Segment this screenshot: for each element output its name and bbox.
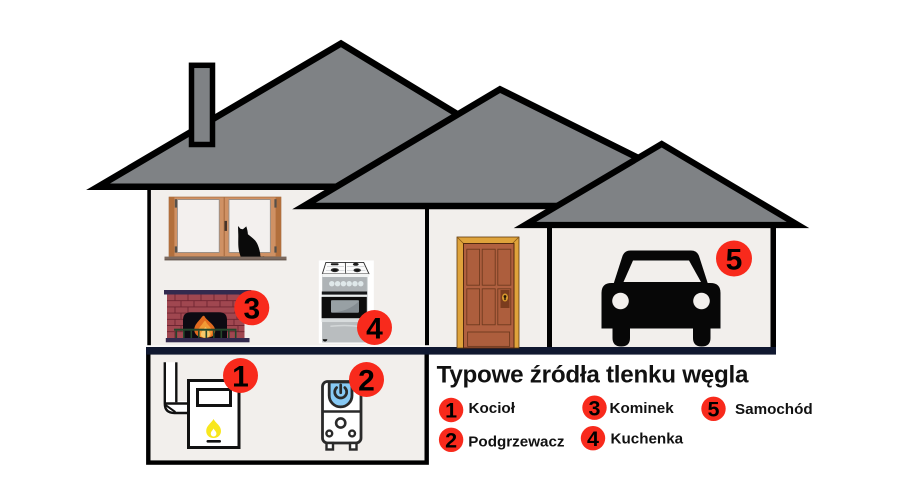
svg-text:5: 5 <box>708 398 720 422</box>
svg-text:3: 3 <box>243 293 260 326</box>
svg-text:1: 1 <box>445 399 457 423</box>
svg-text:2: 2 <box>358 364 375 397</box>
svg-text:5: 5 <box>726 243 743 276</box>
svg-text:1: 1 <box>232 360 249 393</box>
svg-text:Typowe źródła tlenku węgla: Typowe źródła tlenku węgla <box>437 362 749 389</box>
svg-text:Samochód: Samochód <box>735 401 813 418</box>
svg-text:3: 3 <box>589 396 601 420</box>
svg-text:4: 4 <box>366 312 383 345</box>
svg-text:2: 2 <box>445 429 457 453</box>
svg-text:Kuchenka: Kuchenka <box>611 431 684 448</box>
svg-text:Kocioł: Kocioł <box>469 400 516 417</box>
svg-text:Podgrzewacz: Podgrzewacz <box>468 433 565 450</box>
svg-text:4: 4 <box>587 427 599 451</box>
svg-text:Kominek: Kominek <box>610 400 675 417</box>
